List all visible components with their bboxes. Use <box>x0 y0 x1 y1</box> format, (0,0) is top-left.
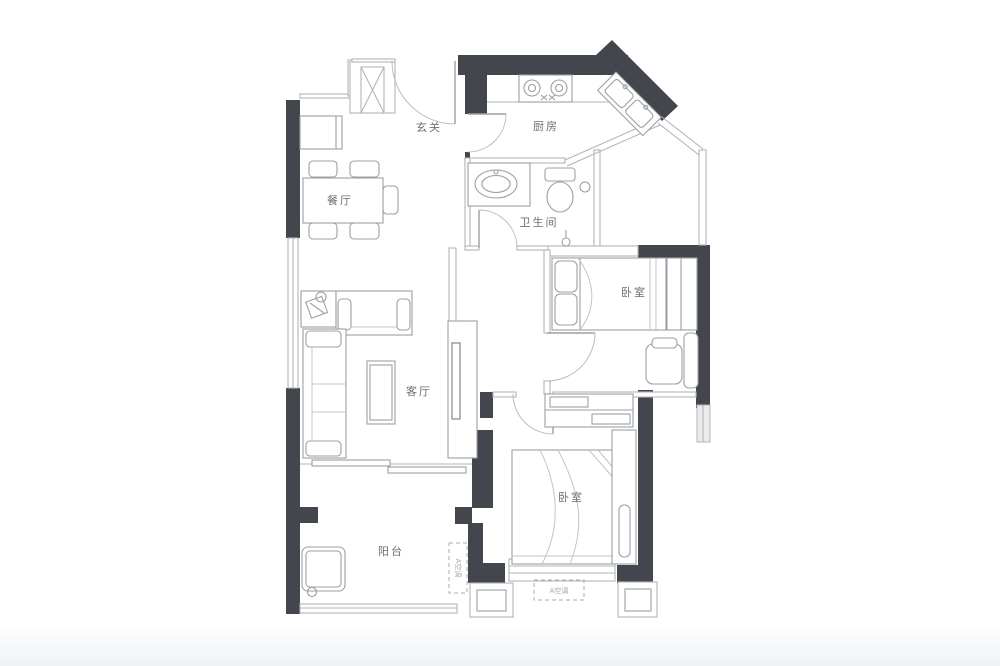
wall-pier <box>300 507 318 523</box>
toilet-tank <box>545 168 575 181</box>
ac-position-label: A空调 <box>454 559 463 578</box>
page-bottom-fade <box>0 630 1000 666</box>
balcony-area <box>302 547 345 597</box>
chair-back <box>652 338 677 348</box>
partition <box>594 150 600 250</box>
room-label-balcony: 阳台 <box>378 544 404 558</box>
partition <box>465 158 565 163</box>
tv-symbol <box>452 343 460 419</box>
bedroom-north-door-arc <box>547 333 595 381</box>
partition <box>544 250 550 333</box>
room-label-bedroom-south: 卧室 <box>558 490 584 504</box>
sofa-armrest <box>306 441 341 456</box>
bathroom-door-arc <box>479 210 517 248</box>
desk-symbol <box>684 333 698 388</box>
room-label-dining: 餐厅 <box>327 193 353 207</box>
partition <box>465 246 479 250</box>
chair-symbol <box>646 344 682 384</box>
room-label-kitchen: 厨房 <box>533 120 559 133</box>
chair-symbol <box>350 223 379 239</box>
wall-segment <box>286 100 300 238</box>
exterior-edge <box>699 150 706 245</box>
wall-segment <box>465 58 487 114</box>
sofa-armrest <box>397 299 410 330</box>
bedroom-north-area <box>552 258 698 388</box>
wall-pier <box>455 507 472 524</box>
room-label-bathroom: 卫生间 <box>520 215 559 229</box>
room-label-living: 客厅 <box>406 384 432 398</box>
bathroom-area <box>468 163 590 246</box>
chair-symbol <box>309 161 337 177</box>
sliding-door-panel <box>312 460 390 466</box>
pillow-symbol <box>555 294 577 325</box>
bedside-shelf <box>667 258 697 330</box>
shower-drain-icon <box>562 238 570 246</box>
vanity-counter <box>468 163 530 206</box>
chair-symbol <box>383 186 398 214</box>
partition <box>300 94 352 98</box>
entry-door-arc <box>392 61 455 124</box>
washing-machine-icon <box>302 547 345 591</box>
sofa-armrest <box>338 299 351 330</box>
wall-pillar <box>468 523 505 583</box>
chair-symbol <box>309 223 337 239</box>
side-cabinet <box>612 430 636 564</box>
room-label-entry: 玄关 <box>416 120 442 134</box>
floor-drain-icon <box>580 182 590 192</box>
partition <box>544 381 550 394</box>
chair-symbol <box>350 161 379 177</box>
toilet-icon <box>547 182 573 212</box>
bed-symbol <box>512 450 616 564</box>
sofa-symbol <box>303 329 346 458</box>
wall-segment <box>286 388 300 614</box>
sofa-armrest <box>306 331 341 347</box>
pillow-symbol <box>555 261 577 292</box>
sliding-door-panel <box>388 467 466 473</box>
exterior-edge <box>658 117 703 155</box>
wall-segment <box>465 152 470 158</box>
kitchen-door-arc <box>468 114 506 152</box>
stove-icon <box>519 75 572 102</box>
floorplan-image: A空调 A空调 玄关 厨房 餐厅 卫生间 卧室 客厅 卧室 阳台 <box>0 0 1000 666</box>
wall-segment <box>480 392 493 418</box>
wall-pillar <box>617 565 653 583</box>
coffee-table-symbol <box>367 361 395 424</box>
floorplan-drawing: A空调 A空调 玄关 厨房 餐厅 卫生间 卧室 客厅 卧室 阳台 <box>0 0 1000 666</box>
bedroom-south-area <box>512 394 636 564</box>
room-label-bedroom-north: 卧室 <box>621 285 647 299</box>
dining-area <box>300 116 398 239</box>
wall-segment <box>638 390 653 583</box>
ac-position-label: A空调 <box>550 586 569 595</box>
partition <box>449 248 456 322</box>
partition <box>548 246 638 256</box>
